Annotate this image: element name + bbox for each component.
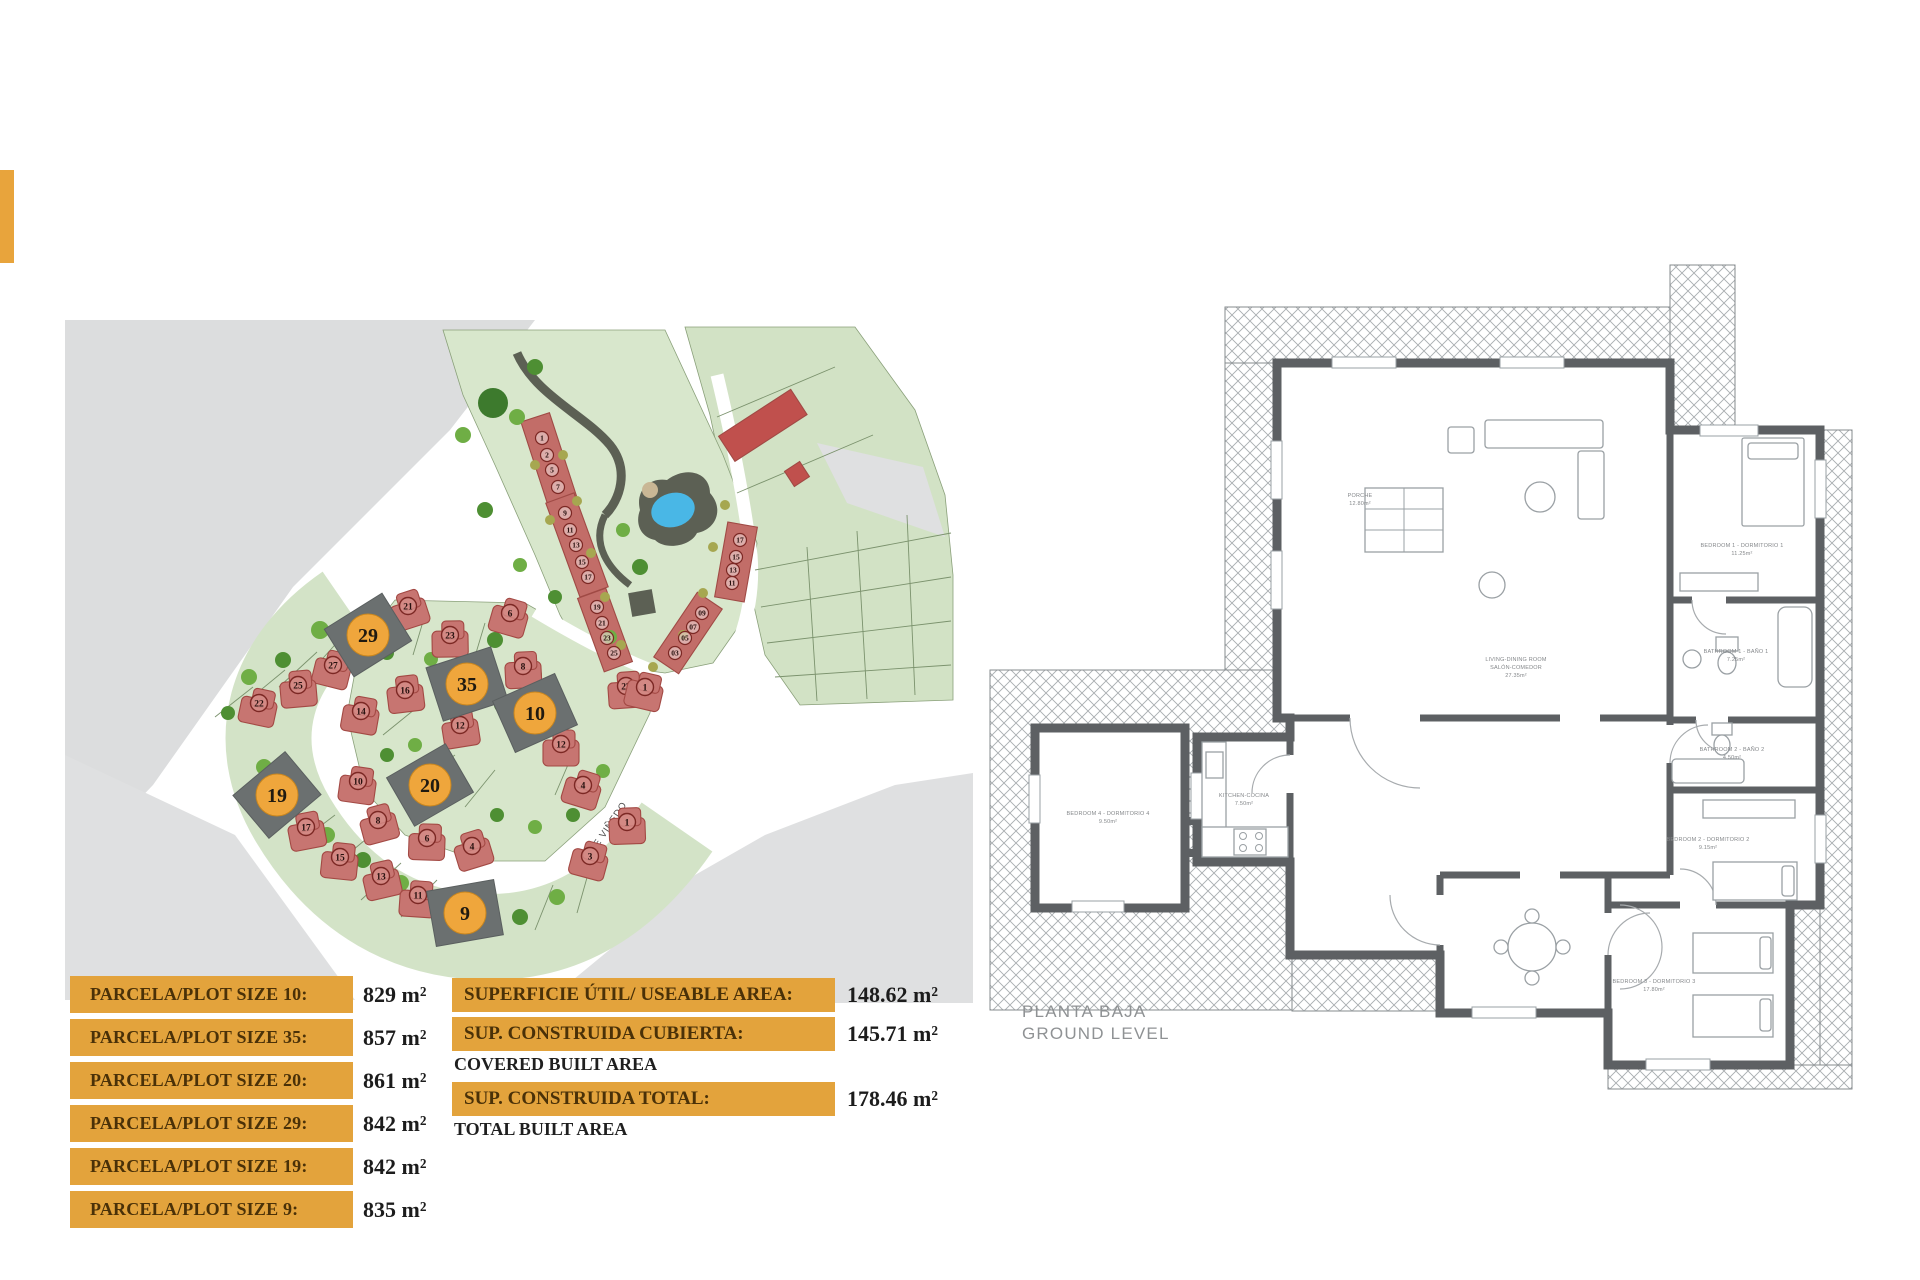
area-sublabel: TOTAL BUILT AREA bbox=[452, 1116, 835, 1142]
townhouse-unit-09: 09 bbox=[696, 607, 709, 620]
svg-text:3: 3 bbox=[588, 852, 593, 862]
svg-text:22: 22 bbox=[254, 699, 264, 709]
svg-text:2: 2 bbox=[545, 451, 549, 460]
svg-text:15: 15 bbox=[732, 553, 740, 562]
room-label-living: LIVING-DINING ROOM bbox=[1485, 657, 1547, 663]
plot-size-value: 835 m² bbox=[363, 1197, 426, 1223]
room-label-kitchen: KITCHEN-COCINA bbox=[1219, 793, 1269, 799]
svg-text:1: 1 bbox=[625, 818, 630, 828]
toilet-tank-2 bbox=[1712, 723, 1732, 735]
bathtub-1 bbox=[1778, 607, 1812, 687]
townhouse-unit-19: 19 bbox=[591, 601, 604, 614]
townhouse-unit-07: 07 bbox=[687, 621, 700, 634]
svg-text:12: 12 bbox=[455, 721, 465, 731]
plot-size-value: 857 m² bbox=[363, 1025, 426, 1051]
floor-plan: PORCHE 12.80m² LIVING-DINING ROOM SALÓN-… bbox=[980, 255, 1880, 1105]
desk bbox=[1703, 800, 1795, 818]
plot-size-label: PARCELA/PLOT SIZE 35: bbox=[70, 1019, 353, 1056]
plot-size-table: PARCELA/PLOT SIZE 10:829 m² PARCELA/PLOT… bbox=[70, 976, 426, 1234]
svg-text:17: 17 bbox=[584, 573, 592, 582]
svg-text:7: 7 bbox=[556, 483, 560, 492]
townhouse-unit-17: 17 bbox=[582, 571, 595, 584]
townhouse-unit-11: 11 bbox=[726, 577, 739, 590]
area-label: SUPERFICIE ÚTIL/ USEABLE AREA: bbox=[452, 978, 835, 1012]
svg-text:07: 07 bbox=[689, 623, 697, 632]
svg-text:9: 9 bbox=[563, 509, 567, 518]
wardrobe bbox=[1680, 573, 1758, 591]
pillow bbox=[1760, 937, 1771, 969]
svg-text:15: 15 bbox=[335, 853, 345, 863]
townhouse-unit-21: 21 bbox=[596, 617, 609, 630]
svg-text:19: 19 bbox=[267, 785, 287, 807]
svg-text:6: 6 bbox=[508, 609, 513, 619]
bathtub-2 bbox=[1672, 759, 1744, 783]
svg-text:9: 9 bbox=[460, 903, 470, 925]
svg-text:20: 20 bbox=[420, 775, 440, 797]
house-marker-10: 10 bbox=[337, 765, 378, 806]
townhouse-unit-9: 9 bbox=[559, 507, 572, 520]
room-label-bed2: BEDROOM 2 - DORMITORIO 2 bbox=[1667, 837, 1750, 843]
round-table bbox=[1508, 923, 1556, 971]
svg-text:9.50m²: 9.50m² bbox=[1099, 819, 1117, 825]
room-label-bath1: BATHROOM 1 - BAÑO 1 bbox=[1704, 648, 1769, 655]
svg-text:1: 1 bbox=[643, 683, 648, 693]
svg-text:11: 11 bbox=[566, 526, 573, 535]
svg-text:17: 17 bbox=[301, 823, 311, 833]
house-marker-14: 14 bbox=[340, 694, 382, 736]
toilet-1 bbox=[1718, 652, 1736, 674]
svg-text:12.80m²: 12.80m² bbox=[1349, 501, 1371, 507]
svg-text:10: 10 bbox=[353, 777, 363, 787]
svg-text:5: 5 bbox=[550, 466, 554, 475]
svg-text:9.15m²: 9.15m² bbox=[1699, 845, 1717, 851]
svg-text:25: 25 bbox=[610, 649, 618, 658]
room-label-bed4: BEDROOM 4 - DORMITORIO 4 bbox=[1067, 811, 1150, 817]
pillow bbox=[1748, 443, 1798, 459]
townhouse-unit-11: 11 bbox=[564, 524, 577, 537]
plot-size-value: 861 m² bbox=[363, 1068, 426, 1094]
plot-size-value: 842 m² bbox=[363, 1154, 426, 1180]
svg-text:17: 17 bbox=[736, 536, 744, 545]
svg-text:SALÓN-COMEDOR: SALÓN-COMEDOR bbox=[1490, 664, 1542, 671]
svg-text:7.25m²: 7.25m² bbox=[1727, 657, 1745, 663]
sink-1 bbox=[1683, 650, 1701, 668]
townhouse-unit-2: 2 bbox=[541, 449, 554, 462]
svg-text:8: 8 bbox=[376, 816, 381, 826]
svg-text:11: 11 bbox=[414, 891, 423, 901]
townhouse-unit-25: 25 bbox=[608, 647, 621, 660]
room-label-porch: PORCHE bbox=[1348, 493, 1373, 499]
svg-text:15: 15 bbox=[578, 558, 586, 567]
townhouse-unit-17: 17 bbox=[734, 534, 747, 547]
coffee-table bbox=[1525, 482, 1555, 512]
pillow bbox=[1782, 866, 1794, 896]
round-feature bbox=[1479, 572, 1505, 598]
townhouse-unit-23: 23 bbox=[601, 632, 614, 645]
townhouse-unit-05: 05 bbox=[679, 632, 692, 645]
svg-text:11: 11 bbox=[728, 579, 735, 588]
area-label: SUP. CONSTRUIDA TOTAL: bbox=[452, 1082, 835, 1116]
area-label: SUP. CONSTRUIDA CUBIERTA: bbox=[452, 1017, 835, 1051]
townhouse-unit-15: 15 bbox=[576, 556, 589, 569]
area-row: SUPERFICIE ÚTIL/ USEABLE AREA: 148.62 m² bbox=[452, 978, 992, 1012]
svg-text:23: 23 bbox=[603, 634, 611, 643]
townhouse-unit-13: 13 bbox=[570, 539, 583, 552]
svg-text:13: 13 bbox=[376, 872, 386, 882]
svg-text:13: 13 bbox=[729, 566, 737, 575]
area-value: 145.71 m² bbox=[847, 1017, 938, 1051]
svg-text:10: 10 bbox=[525, 703, 545, 725]
svg-text:8: 8 bbox=[521, 662, 526, 672]
svg-text:1: 1 bbox=[540, 434, 544, 443]
pillow bbox=[1760, 999, 1771, 1031]
svg-text:19: 19 bbox=[593, 603, 601, 612]
area-value: 178.46 m² bbox=[847, 1082, 938, 1116]
plot-size-row: PARCELA/PLOT SIZE 19:842 m² bbox=[70, 1148, 426, 1185]
svg-text:6: 6 bbox=[425, 834, 430, 844]
svg-text:4: 4 bbox=[581, 781, 586, 791]
plot-size-row: PARCELA/PLOT SIZE 10:829 m² bbox=[70, 976, 426, 1013]
svg-text:12: 12 bbox=[556, 740, 566, 750]
available-plot-marker-9: 9 bbox=[427, 880, 504, 947]
svg-text:4: 4 bbox=[470, 842, 475, 852]
area-value: 148.62 m² bbox=[847, 978, 938, 1012]
svg-text:27.35m²: 27.35m² bbox=[1505, 673, 1527, 679]
svg-text:03: 03 bbox=[671, 649, 679, 658]
svg-text:16: 16 bbox=[400, 686, 410, 696]
plot-size-label: PARCELA/PLOT SIZE 10: bbox=[70, 976, 353, 1013]
svg-text:09: 09 bbox=[698, 609, 706, 618]
townhouse-unit-15: 15 bbox=[730, 551, 743, 564]
detached-room bbox=[1035, 728, 1185, 908]
svg-text:11.25m²: 11.25m² bbox=[1731, 551, 1752, 557]
townhouse-unit-13: 13 bbox=[727, 564, 740, 577]
svg-text:14: 14 bbox=[356, 707, 366, 717]
plot-size-row: PARCELA/PLOT SIZE 9:835 m² bbox=[70, 1191, 426, 1228]
svg-text:7.50m²: 7.50m² bbox=[1235, 801, 1253, 807]
park-plaza bbox=[628, 589, 656, 617]
area-sublabel: COVERED BUILT AREA bbox=[452, 1051, 835, 1077]
svg-text:21: 21 bbox=[598, 619, 606, 628]
svg-text:29: 29 bbox=[358, 625, 378, 647]
sofa bbox=[1485, 420, 1603, 448]
svg-text:25: 25 bbox=[293, 681, 303, 691]
svg-text:23: 23 bbox=[445, 631, 455, 641]
plot-size-value: 842 m² bbox=[363, 1111, 426, 1137]
svg-text:05: 05 bbox=[681, 634, 689, 643]
plot-size-label: PARCELA/PLOT SIZE 9: bbox=[70, 1191, 353, 1228]
room-label-bath2: BATHROOM 2 - BAÑO 2 bbox=[1700, 746, 1765, 753]
page-edge-accent-tab bbox=[0, 170, 14, 263]
plot-size-label: PARCELA/PLOT SIZE 20: bbox=[70, 1062, 353, 1099]
area-row: SUP. CONSTRUIDA TOTAL: TOTAL BUILT AREA … bbox=[452, 1082, 992, 1142]
svg-text:35: 35 bbox=[457, 674, 477, 696]
townhouse-unit-1: 1 bbox=[536, 432, 549, 445]
svg-text:13: 13 bbox=[572, 541, 580, 550]
townhouse-unit-5: 5 bbox=[546, 464, 559, 477]
townhouse-unit-03: 03 bbox=[669, 647, 682, 660]
plan-subtitle: GROUND LEVEL bbox=[1022, 1024, 1170, 1043]
svg-text:27: 27 bbox=[328, 661, 338, 671]
plot-size-label: PARCELA/PLOT SIZE 19: bbox=[70, 1148, 353, 1185]
plan-title: PLANTA BAJA bbox=[1022, 1002, 1146, 1021]
plot-size-row: PARCELA/PLOT SIZE 29:842 m² bbox=[70, 1105, 426, 1142]
room-label-bed1: BEDROOM 1 - DORMITORIO 1 bbox=[1701, 543, 1784, 549]
plot-size-value: 829 m² bbox=[363, 982, 426, 1008]
townhouse-unit-7: 7 bbox=[552, 481, 565, 494]
built-area-table: SUPERFICIE ÚTIL/ USEABLE AREA: 148.62 m²… bbox=[452, 978, 992, 1147]
svg-text:21: 21 bbox=[403, 602, 413, 612]
svg-text:17.80m²: 17.80m² bbox=[1643, 987, 1665, 993]
plot-size-row: PARCELA/PLOT SIZE 20:861 m² bbox=[70, 1062, 426, 1099]
site-plan: CALLE VIÑEDO 212368272522161412101715131… bbox=[65, 315, 975, 1005]
sofa-side bbox=[1578, 451, 1604, 519]
area-row: SUP. CONSTRUIDA CUBIERTA: COVERED BUILT … bbox=[452, 1017, 992, 1077]
svg-text:4.50m²: 4.50m² bbox=[1723, 755, 1741, 761]
room-label-bed3: BEDROOM 3 - DORMITORIO 3 bbox=[1613, 979, 1696, 985]
kitchen-sink bbox=[1206, 752, 1223, 778]
armchair bbox=[1448, 427, 1474, 453]
plot-size-row: PARCELA/PLOT SIZE 35:857 m² bbox=[70, 1019, 426, 1056]
plot-size-label: PARCELA/PLOT SIZE 29: bbox=[70, 1105, 353, 1142]
